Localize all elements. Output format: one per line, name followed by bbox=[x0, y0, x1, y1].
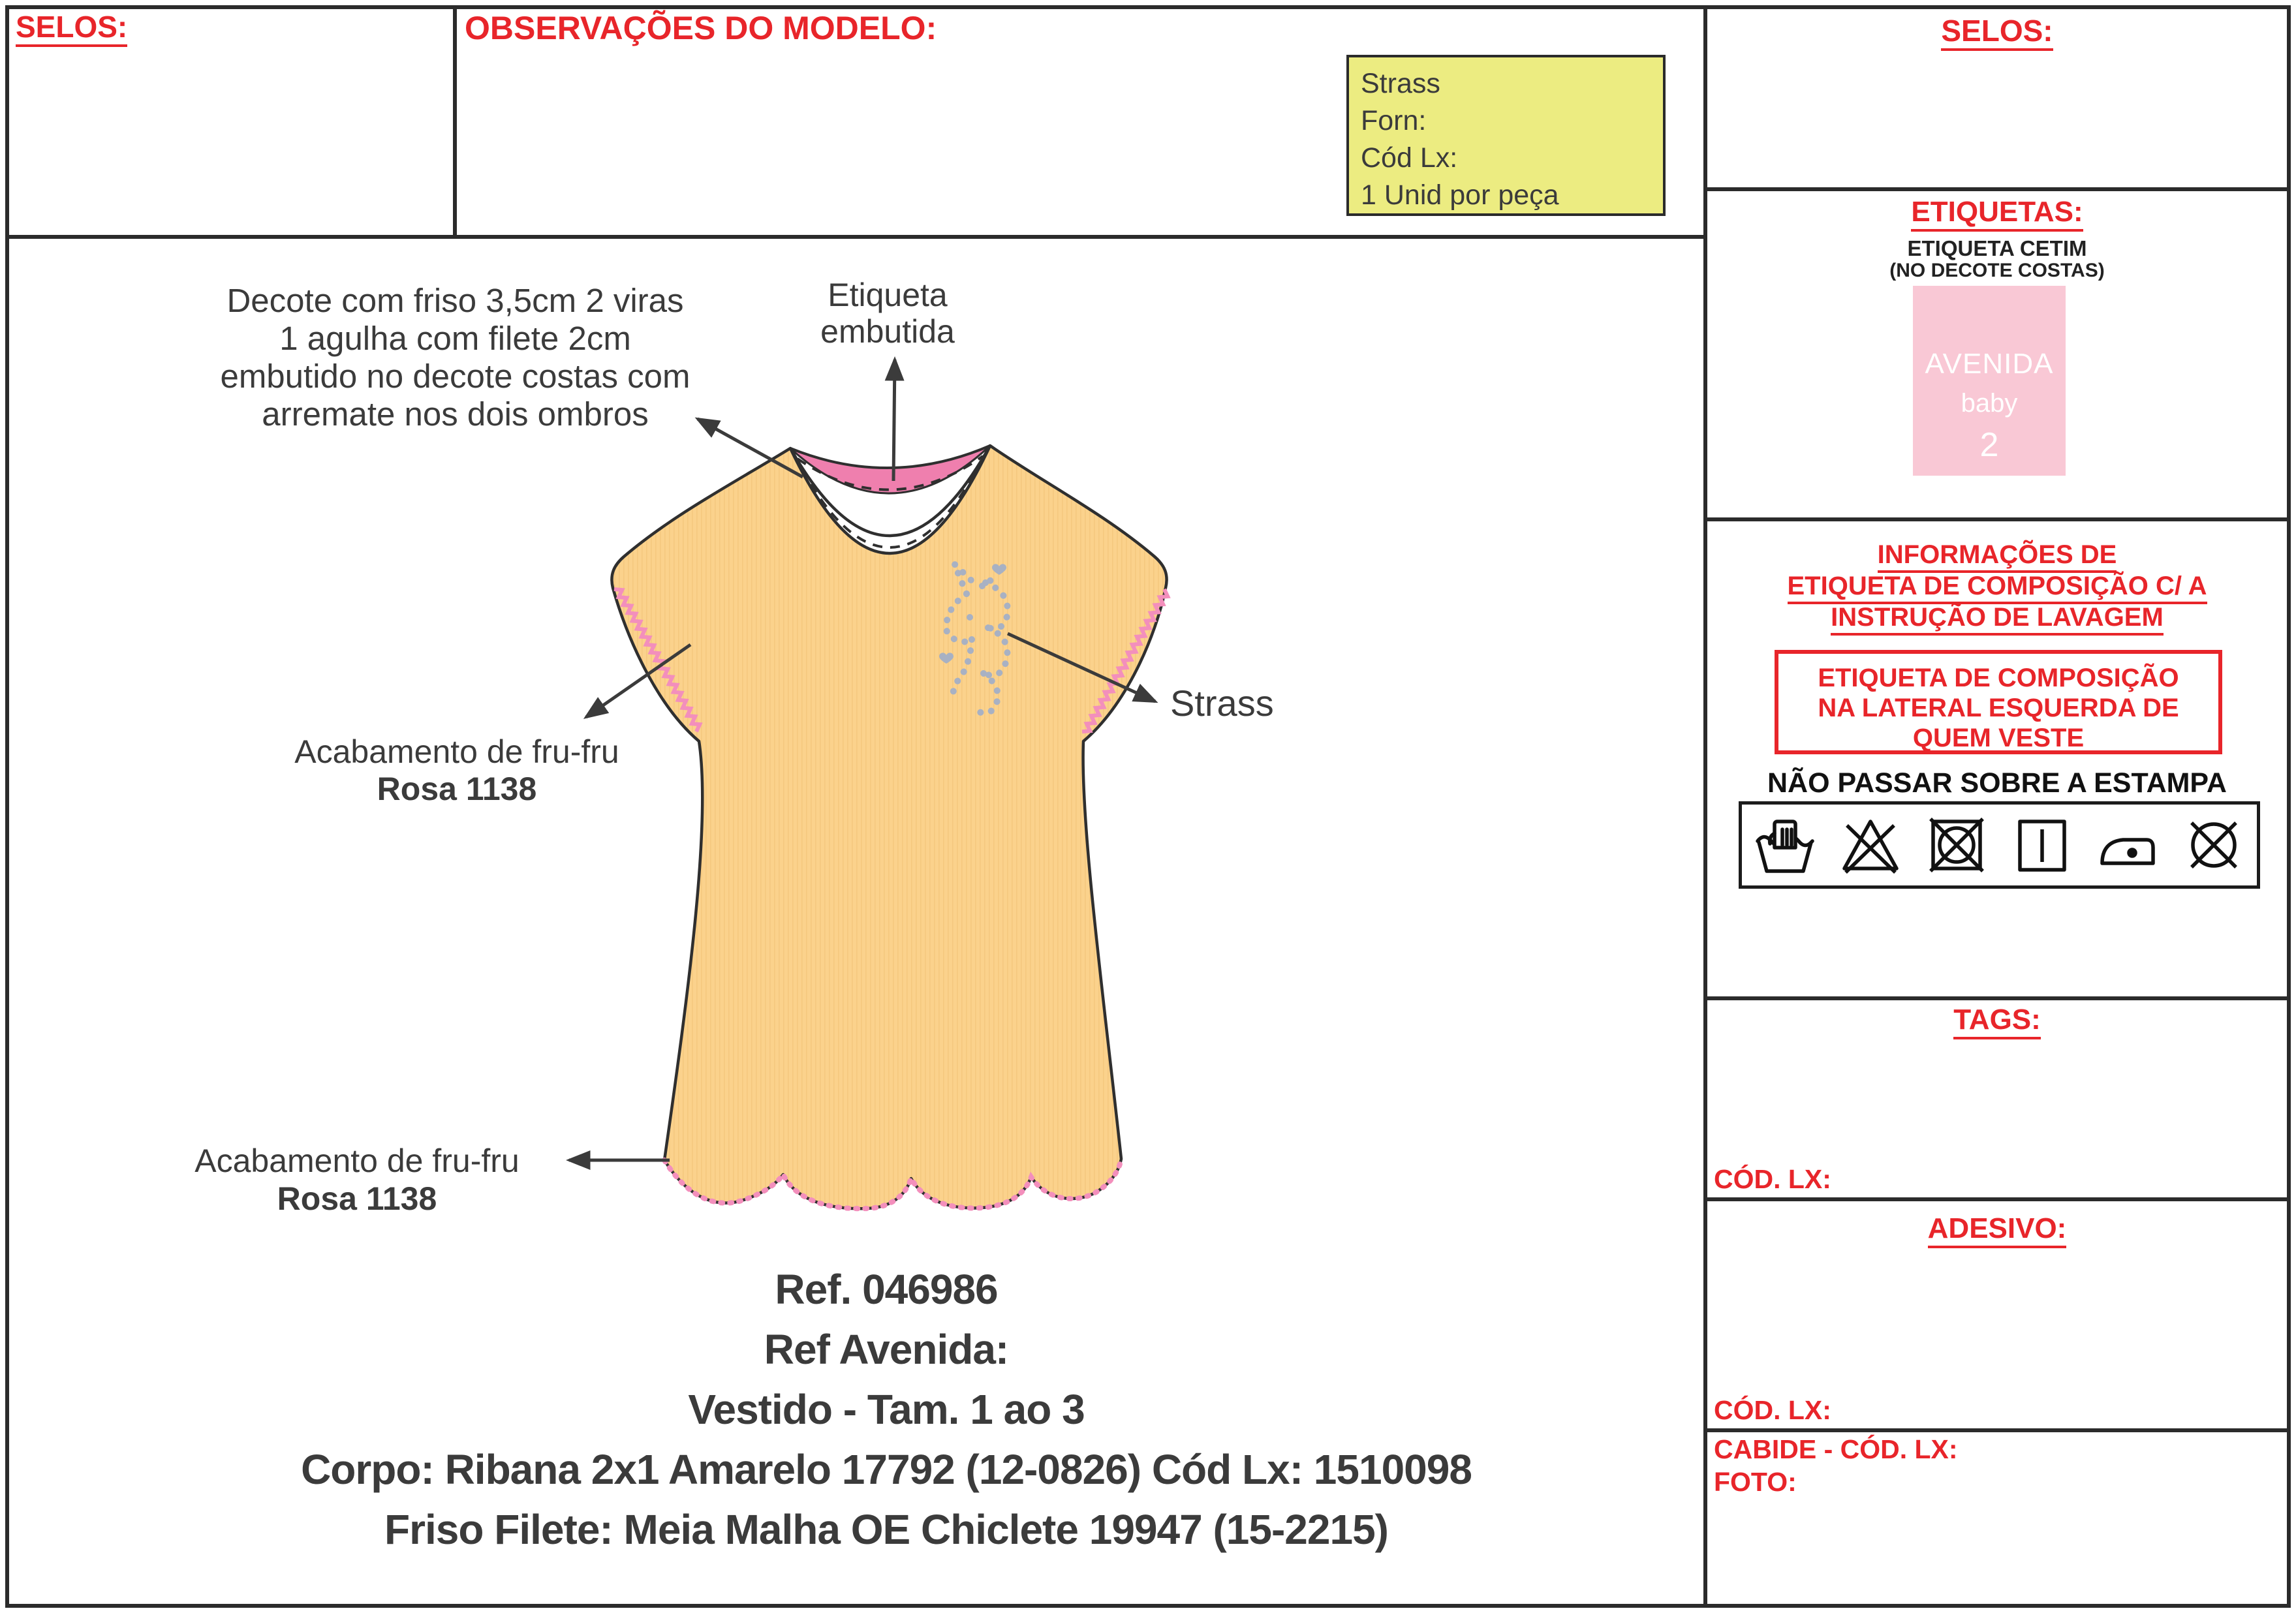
decote-annotation: Decote com friso 3,5cm 2 viras 1 agulha … bbox=[150, 282, 760, 433]
spec-ref: Ref. 046986 bbox=[85, 1259, 1688, 1319]
spec-product: Vestido - Tam. 1 ao 3 bbox=[85, 1379, 1688, 1439]
frufru-hem-annotation: Acabamento de fru-fru Rosa 1138 bbox=[161, 1142, 553, 1218]
strass-annotation: Strass bbox=[1170, 684, 1274, 722]
spec-trim-fabric: Friso Filete: Meia Malha OE Chiclete 199… bbox=[85, 1499, 1688, 1559]
neck-pink-band bbox=[790, 446, 990, 493]
strass-eye-dot bbox=[967, 614, 973, 621]
spec-body-fabric: Corpo: Ribana 2x1 Amarelo 17792 (12-0826… bbox=[85, 1439, 1688, 1499]
frufru-sleeve-annotation: Acabamento de fru-fru Rosa 1138 bbox=[228, 733, 685, 808]
spec-footer: Ref. 046986 Ref Avenida: Vestido - Tam. … bbox=[85, 1259, 1688, 1559]
arrow-etiqueta bbox=[893, 360, 895, 481]
spec-ref-avenida: Ref Avenida: bbox=[85, 1319, 1688, 1379]
dress-body bbox=[612, 446, 1166, 1208]
etiqueta-annotation: Etiqueta embutida bbox=[786, 277, 989, 350]
